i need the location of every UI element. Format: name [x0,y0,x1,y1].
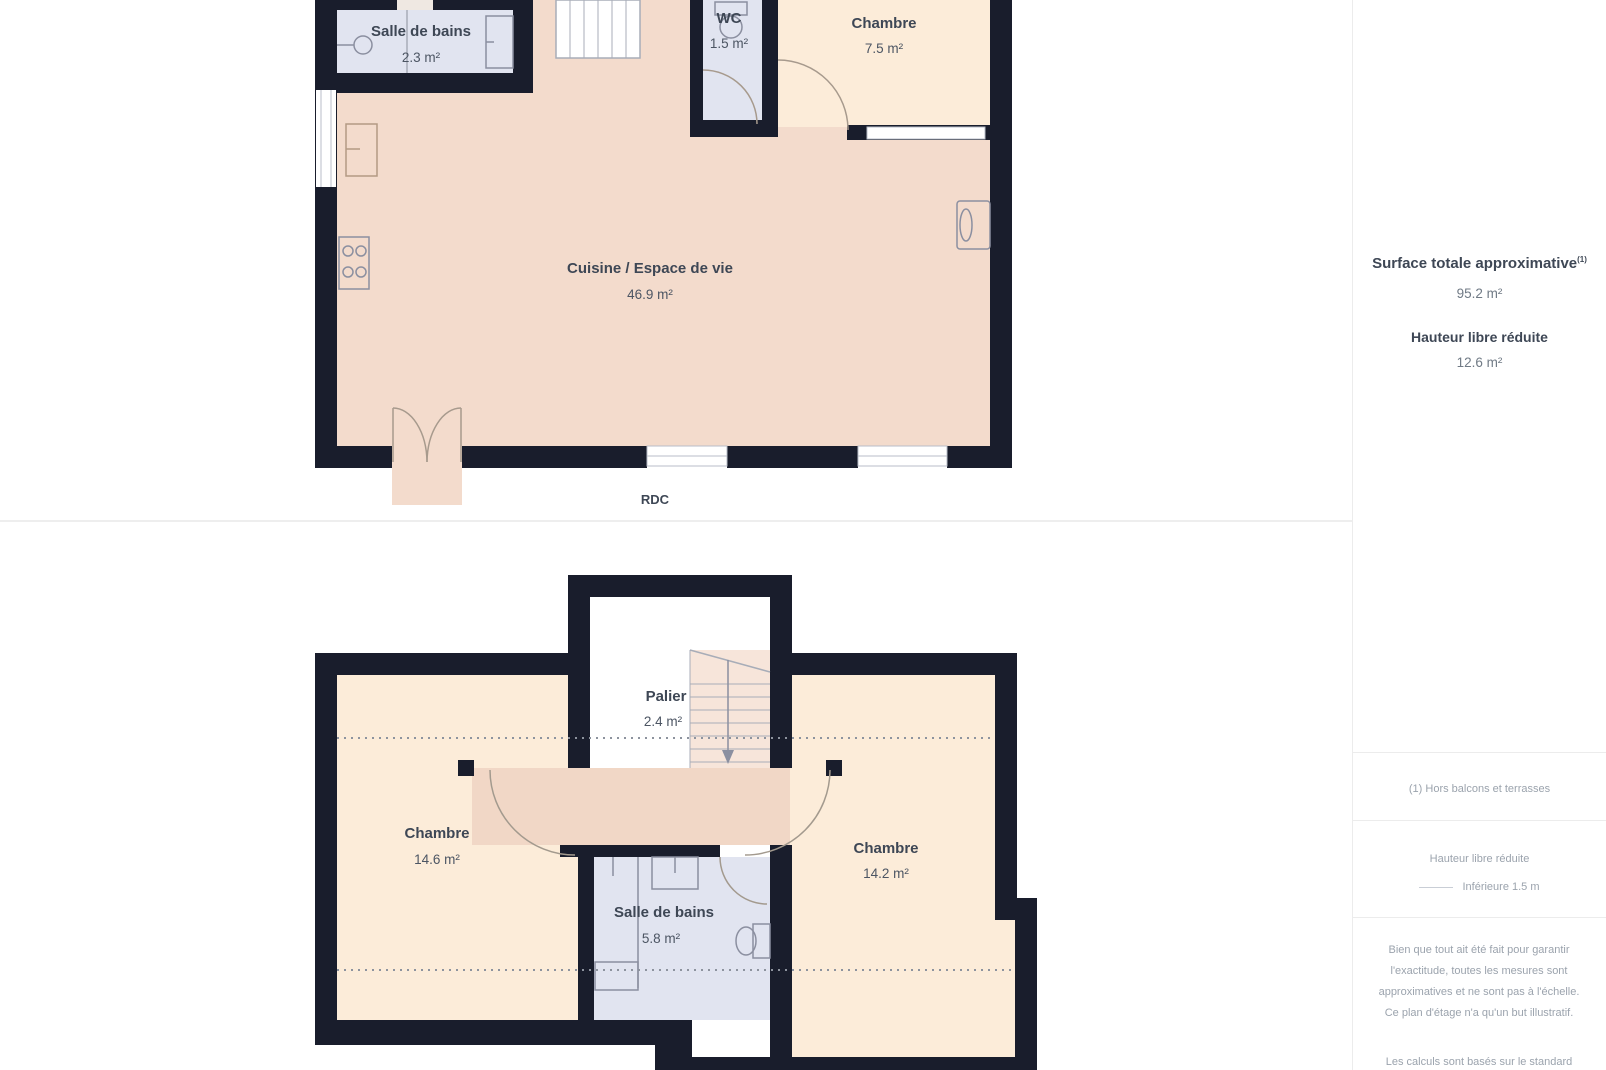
floor-plan-page: Salle de bains 2.3 m² WC 1.5 m² Chambre … [0,0,1606,1070]
room-area-chambre-rdc: 7.5 m² [865,41,904,56]
sidebar-divider-vertical [1352,0,1353,1070]
landing-floor [472,768,790,845]
room-area-wc: 1.5 m² [710,36,749,51]
room-area-cuisine: 46.9 m² [627,287,673,302]
room-label-wc: WC [717,10,742,27]
floor-plans-canvas: Salle de bains 2.3 m² WC 1.5 m² Chambre … [0,0,1606,1070]
floor-label-rdc: RDC [641,492,670,507]
window-bottom-1 [647,446,727,466]
room-area-chambre-droite: 14.2 m² [863,866,909,881]
stairs-icon-rdc [556,0,640,58]
disclaimer-text-2: Les calculs sont basés sur le standard [1371,1052,1587,1070]
room-area-chambre-gauche: 14.6 m² [414,852,460,867]
sidebar-divider-1 [1353,752,1606,753]
room-label-cuisine: Cuisine / Espace de vie [567,260,733,277]
room-area-palier: 2.4 m² [644,714,683,729]
chambre-right-floor-lower [790,898,1017,1057]
room-area-sdb-rdc: 2.3 m² [402,50,441,65]
surface-total-footnote-marker: (1) [1577,255,1587,264]
sidebar-divider-2 [1353,820,1606,821]
room-label-sdb-rdc: Salle de bains [371,23,471,40]
interior-window [867,127,985,139]
room-label-palier: Palier [646,688,687,705]
legend-title: Hauteur libre réduite [1353,849,1606,870]
room-label-sdb-etage: Salle de bains [614,904,714,921]
surface-total-title: Surface totale approximative(1) [1353,255,1606,272]
reduced-height-title: Hauteur libre réduite [1353,329,1606,345]
surface-total-title-text: Surface totale approximative [1372,255,1577,272]
sdb-etage-floor [594,857,770,1020]
rdc-salle-de-bains [315,0,533,93]
window-bottom-2 [858,446,947,466]
legend-row: Inférieure 1.5 m [1353,877,1606,898]
surface-total-value: 95.2 m² [1353,286,1606,301]
sidebar-divider-3 [1353,917,1606,918]
reduced-height-value: 12.6 m² [1353,355,1606,370]
disclaimer-text: Bien que tout ait été fait pour garantir… [1371,940,1587,1024]
window-left [316,90,336,187]
floor-plan-etage: Palier 2.4 m² Chambre 14.6 m² Chambre 14… [315,575,1037,1070]
room-label-chambre-gauche: Chambre [404,825,469,842]
room-label-chambre-droite: Chambre [853,840,918,857]
room-area-sdb-etage: 5.8 m² [642,931,681,946]
chambre-right-floor-upper [790,675,995,898]
reduced-height-line-icon [1419,887,1453,888]
stairs-icon-etage [690,650,770,768]
room-label-chambre-rdc: Chambre [851,15,916,32]
footnote-text: (1) Hors balcons et terrasses [1353,779,1606,800]
floor-plan-rdc: Salle de bains 2.3 m² WC 1.5 m² Chambre … [315,0,1012,507]
legend-value: Inférieure 1.5 m [1462,881,1539,893]
